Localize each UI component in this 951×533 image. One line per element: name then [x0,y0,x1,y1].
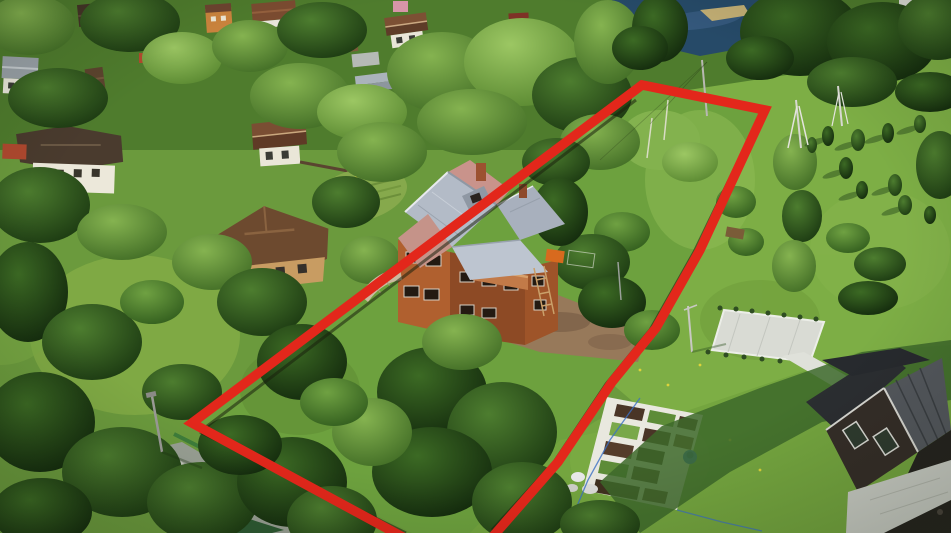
aerial-photo [0,0,951,533]
vignette-overlay [0,0,951,533]
